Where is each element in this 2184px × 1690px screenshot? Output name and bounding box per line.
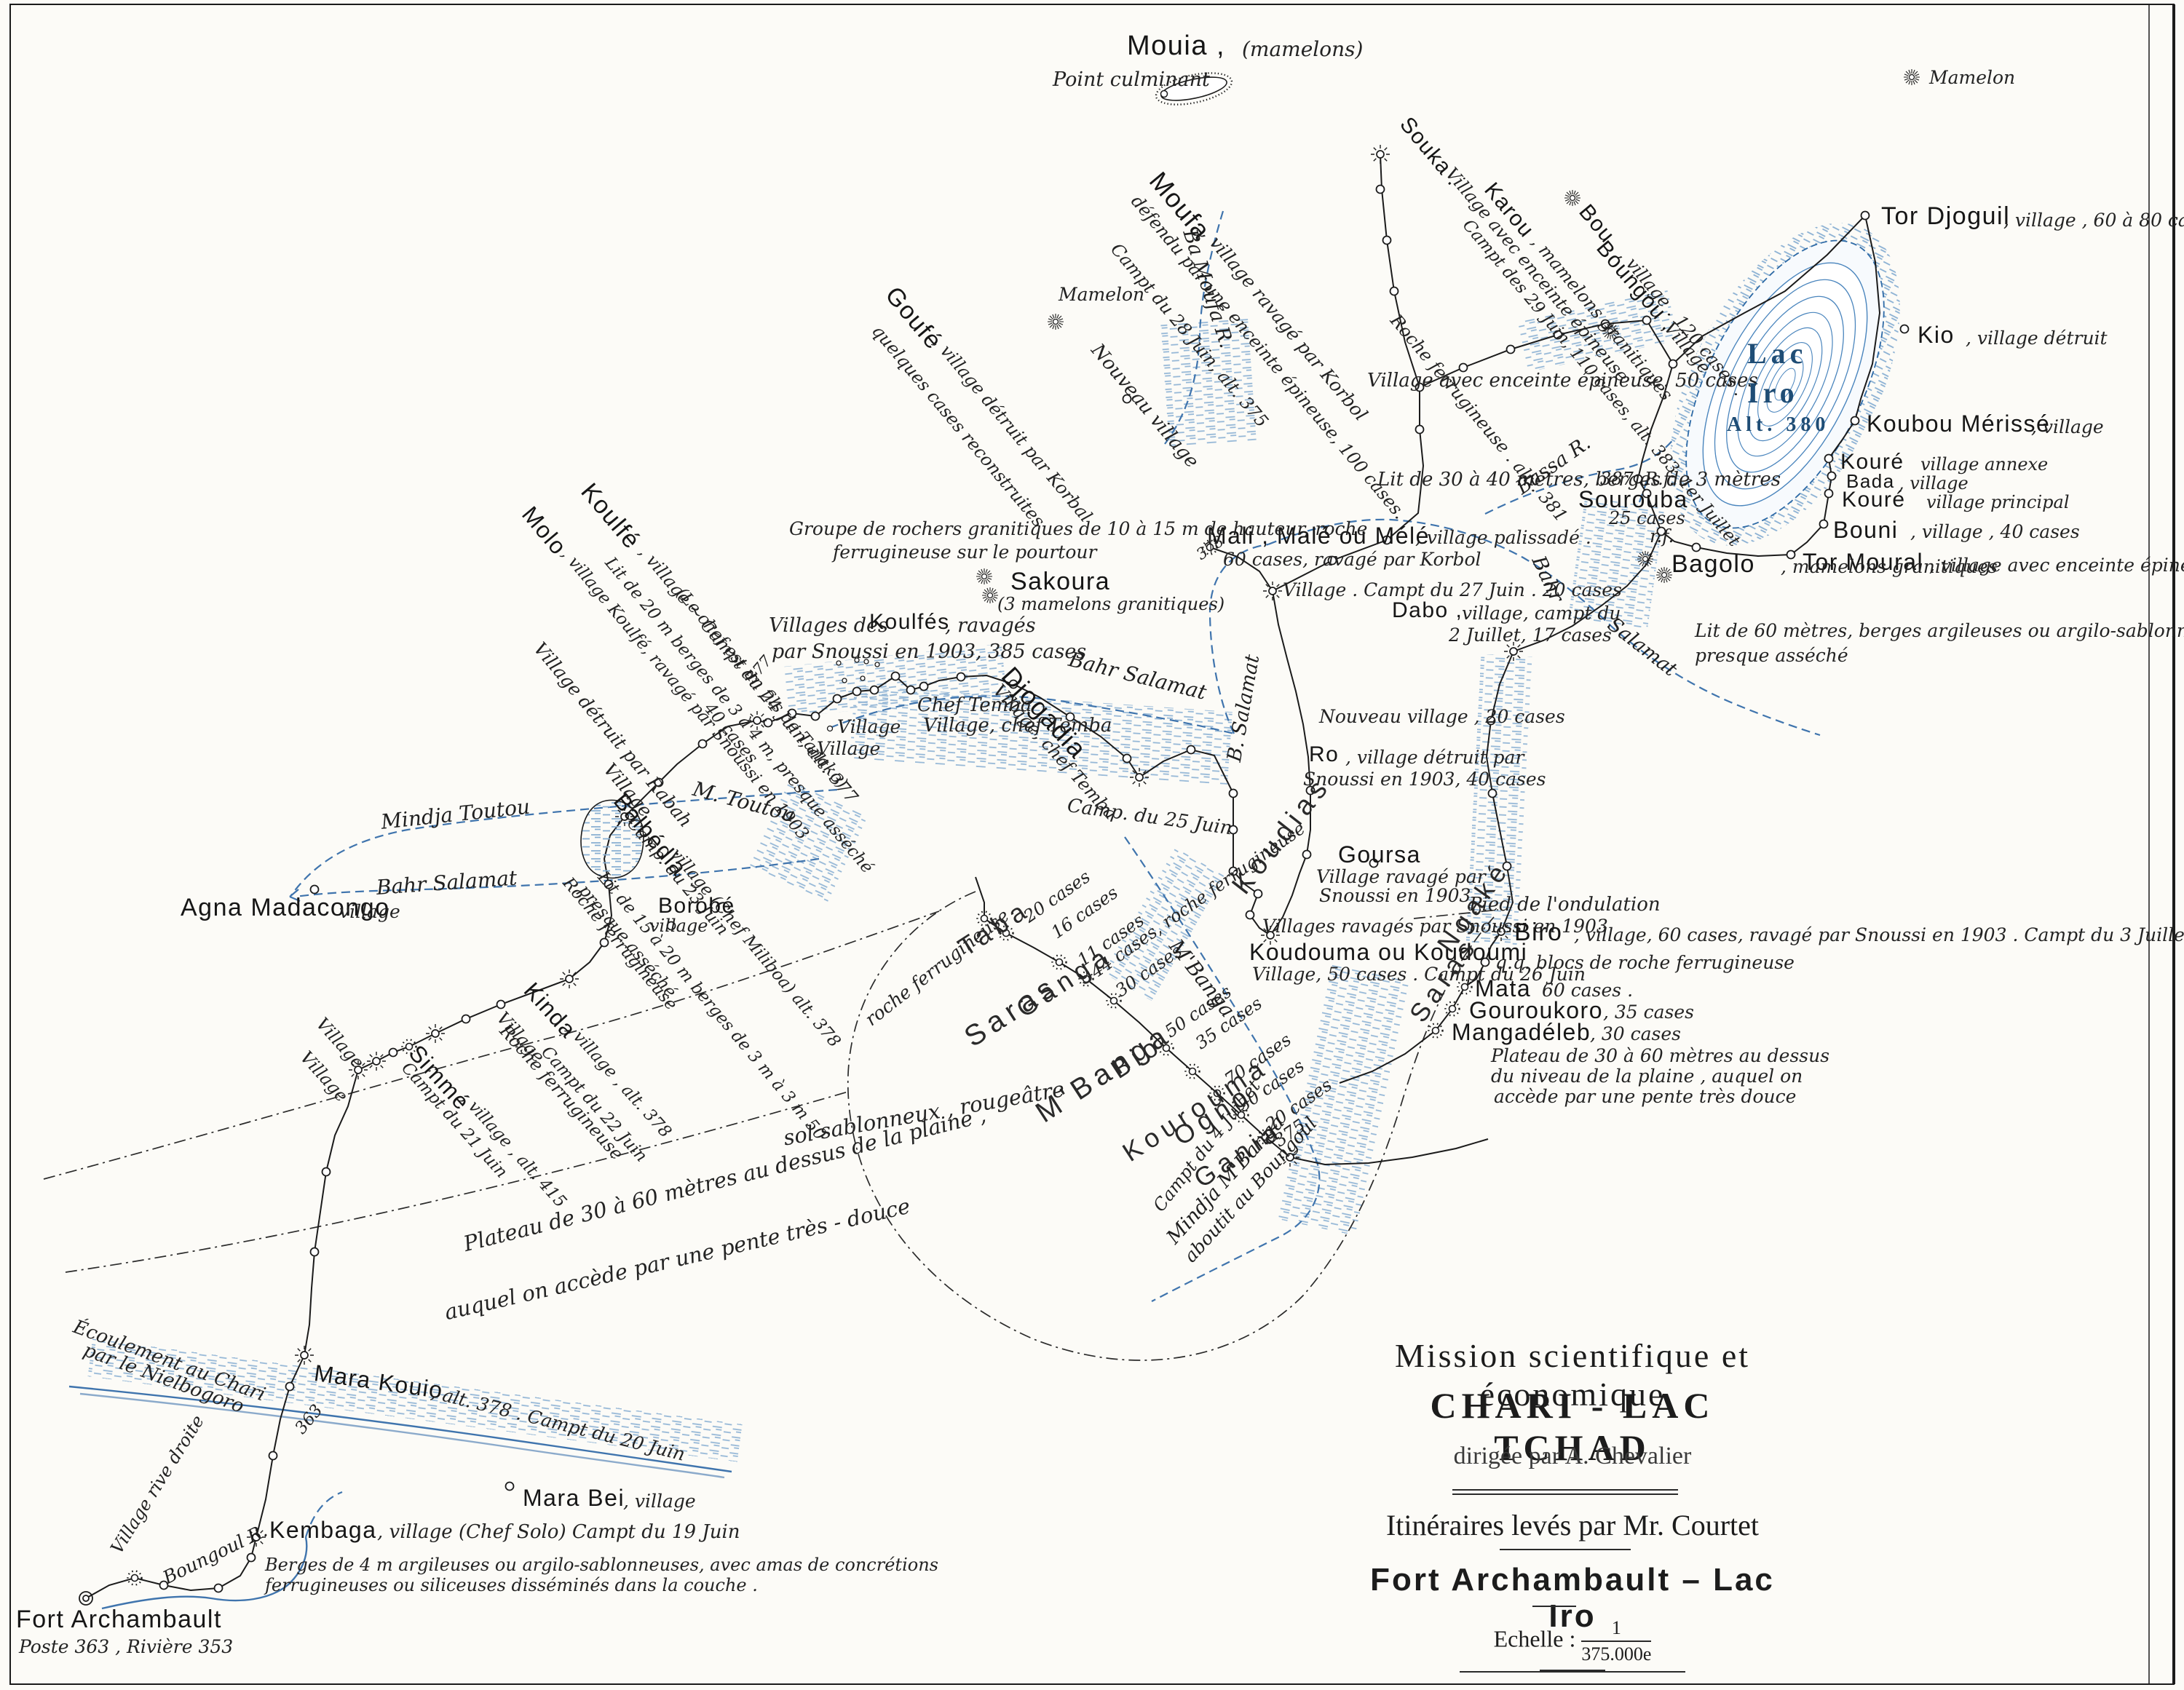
- label-tor-djoguil-name: Tor Djoguil: [1881, 204, 2010, 229]
- label-roche-ferrugineuse-alt: Roche ferrugineuse . alt . 381: [1388, 312, 1570, 525]
- label-alt-380: Alt. 380: [1727, 415, 1829, 435]
- label-boungoul-r: Boungoul R.: [160, 1521, 270, 1587]
- label-village-k1: Village: [837, 718, 901, 736]
- title-rule-4b: [1540, 1670, 1605, 1673]
- label-koulfe-name: Koulfé: [577, 479, 645, 554]
- label-bagolo-name: Bagolo: [1671, 552, 1755, 576]
- label-mara-kouio-desc: , alt. 378 . Campt du 20 Juin: [430, 1383, 687, 1464]
- label-rf-small: r.f.: [1650, 527, 1674, 545]
- map-title-line4: Itinéraires levés par Mr. Courtet: [1347, 1508, 1798, 1542]
- label-village-chef-temba: Village, chef Temba: [923, 716, 1112, 735]
- label-koure2-desc: village principal: [1926, 493, 2070, 511]
- label-groupe-rochers-2: ferrugineuse sur le pourtour: [833, 543, 1096, 561]
- label-dabo-desc: village, campt du: [1462, 604, 1621, 622]
- label-goursa-name: Goursa: [1338, 843, 1421, 866]
- map-labels-layer: Mouia ,(mamelons)Point culminantMoufa, v…: [0, 0, 2184, 1690]
- label-qq-blocs: q.q. blocs de roche ferrugineuse: [1495, 953, 1795, 972]
- label-ro-name: Ro: [1309, 744, 1339, 766]
- label-mamelon-est: Mamelon: [1929, 68, 2015, 87]
- label-villages-koulfes-c: par Snoussi en 1903, 385 cases: [772, 642, 1086, 662]
- label-gouroukoro-desc: , 35 cases: [1603, 1003, 1694, 1021]
- historical-map-chari-lac-tchad: Mouia ,(mamelons)Point culminantMoufa, v…: [0, 0, 2184, 1690]
- label-plateau-est-2: du niveau de la plaine , auquel on: [1491, 1067, 1803, 1085]
- label-village-enceinte-50: Village avec enceinte épineuse. 50 cases: [1367, 371, 1758, 390]
- label-mara-kouio-name: Mara Kouio: [313, 1361, 445, 1403]
- label-iro: Iro: [1747, 378, 1799, 408]
- scale-denominator: 375.000e: [1581, 1642, 1651, 1665]
- label-pied-ondulation: Pied de l'ondulation: [1469, 895, 1661, 914]
- label-sakoura-desc: (3 mamelons granitiques): [997, 595, 1224, 613]
- label-biro-desc: , village, 60 cases, ravagé par Snoussi …: [1574, 926, 2184, 944]
- label-goursa-desc: Village ravagé par: [1316, 868, 1486, 886]
- label-village-camp-27: Village . Campt du 27 Juin . 20 cases: [1283, 581, 1622, 599]
- label-berges-2: ferrugineuses ou siliceuses disséminés d…: [265, 1576, 758, 1594]
- label-dabo-name: Dabo ,: [1392, 600, 1463, 622]
- label-plateau-est-3: accède par une pente très douce: [1494, 1087, 1796, 1106]
- label-mali-desc2: 60 cases, ravagé par Korbol: [1223, 550, 1481, 568]
- label-plateau-est-1: Plateau de 30 à 60 mètres au dessus: [1491, 1047, 1829, 1065]
- label-biro-name: Biro: [1514, 920, 1562, 945]
- label-kembaga-desc: , village (Chef Solo) Campt du 19 Juin: [377, 1523, 740, 1542]
- label-b-salamat: B. Salamat: [1224, 653, 1262, 763]
- label-borobe-name: Borobé: [658, 895, 735, 917]
- label-kio-desc: , village détruit: [1966, 329, 2108, 347]
- label-dabo-desc2: 2 Juillet, 17 cases: [1449, 626, 1612, 644]
- label-balbedia-desc2: village (Chef Miliboa) alt. 378: [667, 846, 842, 1051]
- title-rule-2: [1500, 1549, 1631, 1550]
- title-rule-1b: [1452, 1493, 1678, 1495]
- label-ro-desc: , village détruit par: [1345, 748, 1524, 766]
- label-agna-desc: village: [339, 902, 400, 921]
- label-mbanga-ouest: M'Banga: [1031, 1019, 1176, 1127]
- label-koudouma-name: Koudouma ou Koudoumi: [1249, 940, 1527, 964]
- label-berges-1: Berges de 4 m argileuses ou argilo-sablo…: [265, 1556, 938, 1574]
- label-rf-387: 387. R.f.: [1600, 470, 1674, 488]
- label-village-rive-droite: Village rive droite: [108, 1412, 207, 1556]
- label-mamelon-ouest: Mamelon: [1059, 285, 1144, 304]
- label-village-k2: Village: [817, 739, 880, 758]
- label-bagolo-desc: , mamelons granitiques: [1781, 558, 1998, 576]
- label-kembaga-name: Kembaga: [269, 1518, 376, 1542]
- label-lit-60-1: Lit de 60 mètres, berges argileuses ou a…: [1695, 622, 2184, 640]
- label-nouveau-village-nord: Nouveau village: [1088, 341, 1202, 472]
- title-rule-3: [1532, 1606, 1576, 1607]
- label-fort-archambault-desc: Poste 363 , Rivière 353: [19, 1638, 233, 1656]
- label-mouia-type: (mamelons): [1242, 39, 1363, 60]
- label-villages-koulfes-b: , ravagés: [945, 616, 1036, 635]
- label-mangadeleb-name: Mangadéleb: [1452, 1020, 1591, 1044]
- label-bouni-name: Bouni: [1833, 518, 1898, 541]
- label-nouveau-village-20: Nouveau village , 20 cases: [1319, 707, 1565, 726]
- title-rule-1a: [1452, 1489, 1678, 1491]
- label-ro-desc2: Snoussi en 1903, 40 cases: [1303, 770, 1546, 788]
- label-moufa-desc2: défendu par une enceinte épineuse, 100 c…: [1128, 192, 1409, 522]
- label-mindja-toutou: Mindja Toutou: [380, 797, 531, 833]
- label-sourouba-cases: 25 cases: [1609, 509, 1685, 527]
- label-bada-desc: , village: [1899, 475, 1969, 492]
- scale-numerator: 1: [1581, 1617, 1651, 1642]
- scale-label: Echelle :: [1494, 1625, 1576, 1651]
- map-title-line3: dirigée par A. Chevalier: [1347, 1443, 1798, 1470]
- label-bouni-desc: , village , 40 cases: [1910, 523, 2080, 541]
- label-mouia-name: Mouia ,: [1127, 32, 1225, 60]
- label-lac: Lac: [1747, 339, 1807, 368]
- label-koubou-desc: , village: [2031, 418, 2104, 436]
- label-mangadeleb-desc: , 30 cases: [1590, 1025, 1681, 1043]
- scale-fraction: 1 375.000e: [1581, 1617, 1651, 1665]
- label-bahr-salamat-ouest: Bahr Salamat: [376, 868, 518, 897]
- label-villages-koulfes-name: Koulfés: [869, 611, 950, 633]
- label-souka-desc: Village avec enceinte épineuse: [1443, 164, 1632, 385]
- scale-line: Echelle : 1 375.000e: [1347, 1617, 1798, 1665]
- label-plateau-ouest-3: auquel on accède par une pente très - do…: [443, 1196, 912, 1324]
- label-saras-ouest: Saras: [960, 970, 1064, 1052]
- label-sakoura-name: Sakoura: [1010, 569, 1110, 594]
- label-mara-bei-desc: , village: [623, 1492, 696, 1510]
- label-mali-desc: , village palissadé .: [1415, 528, 1591, 547]
- label-kio-name: Kio: [1918, 323, 1955, 346]
- label-alt-363: 363: [293, 1402, 326, 1437]
- label-goursa-desc2: Snoussi en 1903: [1319, 886, 1471, 905]
- label-m-toutou: M. Toutou: [691, 779, 797, 825]
- label-bahr-salamat-mid: Bahr Salamat: [1067, 649, 1208, 703]
- label-salamat-label: Salamat: [1604, 614, 1680, 680]
- label-point-culminant: Point culminant: [1053, 70, 1210, 90]
- label-taba-name: Taba: [954, 895, 1035, 961]
- label-koure1-desc: village annexe: [1920, 456, 2048, 473]
- label-mara-bei-name: Mara Bei: [523, 1486, 625, 1510]
- label-tor-djoguil-desc: , village , 60 à 80 cases: [2003, 211, 2184, 229]
- label-koure2-name: Kouré: [1842, 489, 1906, 511]
- label-molo-name: Molo: [518, 502, 571, 559]
- label-groupe-rochers-1: Groupe de rochers granitiques de 10 à 15…: [789, 520, 1367, 538]
- label-fort-archambault-name: Fort Archambault: [16, 1607, 222, 1632]
- label-camp-25-juin: Camp. du 25 Juin: [1066, 796, 1233, 838]
- label-chef-temba: Chef Temba: [917, 696, 1032, 715]
- label-lit-60-2: presque asséché: [1695, 646, 1848, 665]
- label-koubou-name: Koubou Mérissé: [1867, 412, 2050, 435]
